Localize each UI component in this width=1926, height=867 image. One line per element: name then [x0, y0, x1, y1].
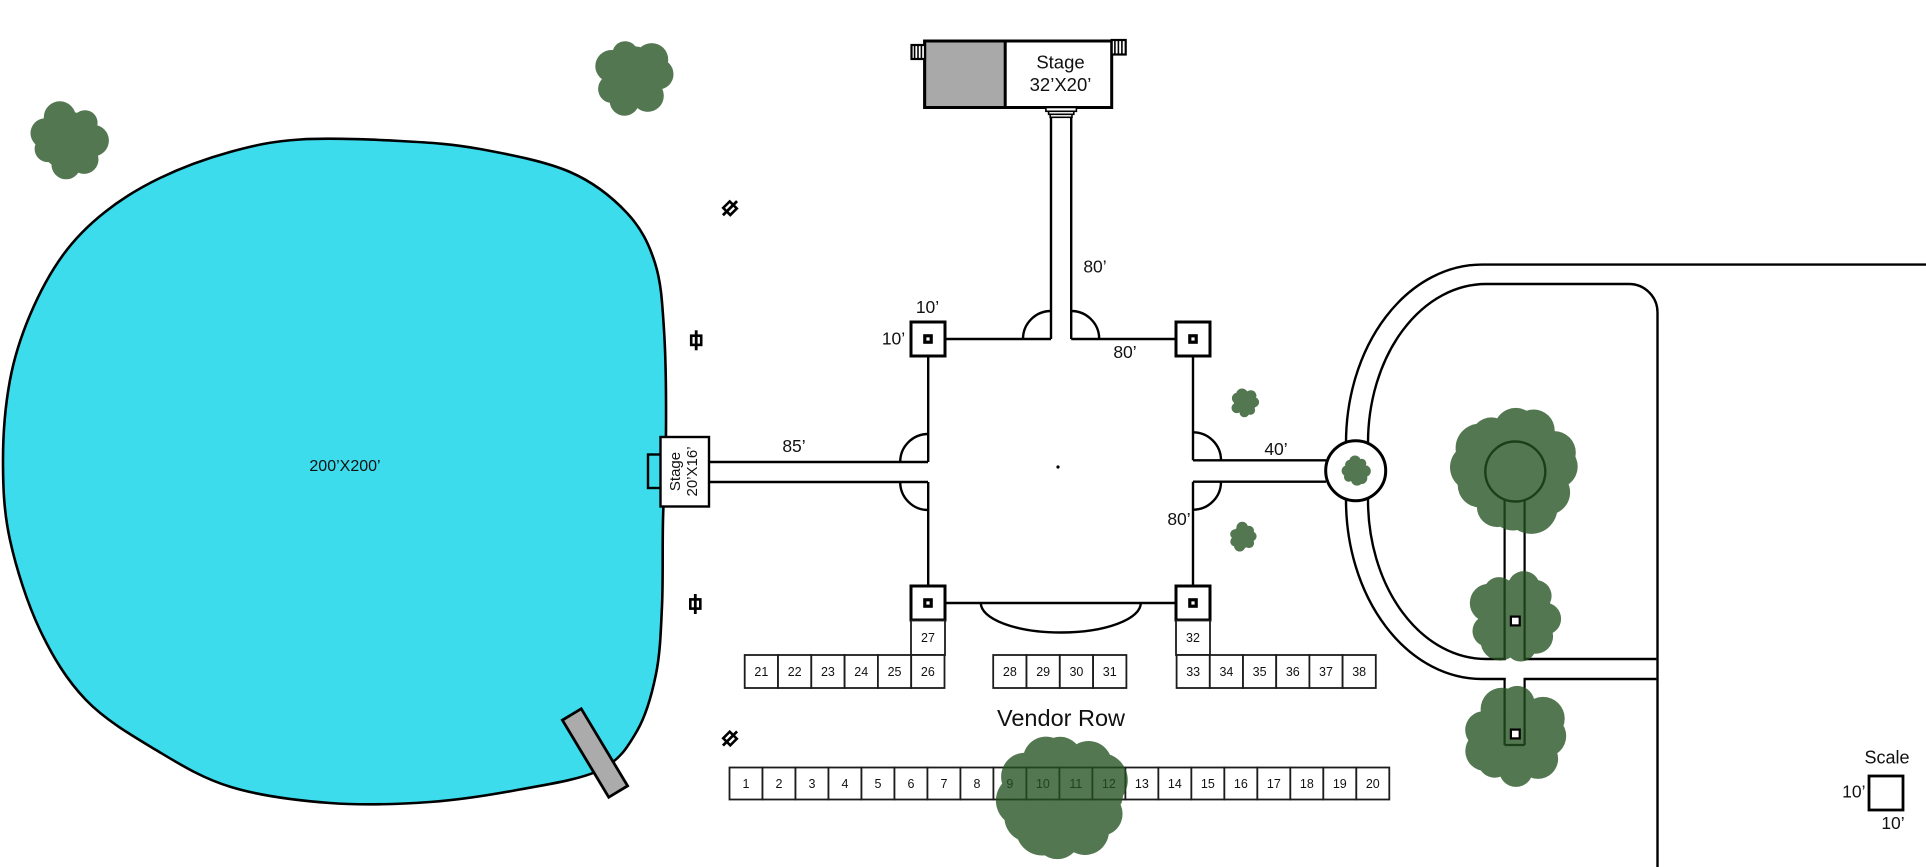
svg-text:31: 31	[1103, 665, 1117, 679]
svg-text:4: 4	[841, 777, 848, 791]
svg-text:20: 20	[1366, 777, 1380, 791]
svg-text:10’: 10’	[882, 329, 905, 349]
svg-text:10’: 10’	[916, 297, 939, 317]
svg-text:22: 22	[788, 665, 802, 679]
svg-text:32’X20’: 32’X20’	[1030, 74, 1092, 95]
svg-text:1: 1	[743, 777, 750, 791]
svg-text:80’: 80’	[1113, 342, 1136, 362]
svg-text:17: 17	[1267, 777, 1281, 791]
svg-text:80’: 80’	[1083, 257, 1106, 277]
svg-text:80’: 80’	[1167, 509, 1190, 529]
svg-text:Stage: Stage	[1036, 52, 1084, 73]
svg-text:6: 6	[907, 777, 914, 791]
svg-text:28: 28	[1003, 665, 1017, 679]
svg-text:27: 27	[921, 631, 935, 645]
svg-text:13: 13	[1135, 777, 1149, 791]
svg-text:26: 26	[921, 665, 935, 679]
svg-text:19: 19	[1333, 777, 1347, 791]
svg-text:15: 15	[1201, 777, 1215, 791]
svg-text:8: 8	[973, 777, 980, 791]
svg-text:18: 18	[1300, 777, 1314, 791]
svg-text:23: 23	[821, 665, 835, 679]
svg-text:21: 21	[754, 665, 768, 679]
svg-text:36: 36	[1286, 665, 1300, 679]
svg-text:7: 7	[940, 777, 947, 791]
svg-text:38: 38	[1352, 665, 1366, 679]
svg-text:30: 30	[1069, 665, 1083, 679]
svg-text:14: 14	[1168, 777, 1182, 791]
svg-text:32: 32	[1186, 631, 1200, 645]
svg-text:200’X200’: 200’X200’	[309, 458, 380, 475]
svg-text:Vendor Row: Vendor Row	[997, 705, 1126, 731]
svg-text:Stage: Stage	[667, 452, 684, 491]
svg-text:16: 16	[1234, 777, 1248, 791]
svg-text:34: 34	[1219, 665, 1233, 679]
svg-text:33: 33	[1186, 665, 1200, 679]
svg-text:40’: 40’	[1264, 439, 1287, 459]
svg-text:3: 3	[809, 777, 816, 791]
svg-text:10’: 10’	[1842, 782, 1865, 802]
svg-text:85’: 85’	[782, 436, 805, 456]
svg-text:2: 2	[776, 777, 783, 791]
svg-text:25: 25	[888, 665, 902, 679]
svg-text:10’: 10’	[1881, 813, 1904, 833]
svg-text:24: 24	[854, 665, 868, 679]
svg-text:35: 35	[1253, 665, 1267, 679]
svg-text:20’X16’: 20’X16’	[684, 446, 701, 496]
svg-text:29: 29	[1036, 665, 1050, 679]
svg-text:37: 37	[1319, 665, 1333, 679]
svg-text:5: 5	[874, 777, 881, 791]
svg-text:Scale: Scale	[1864, 748, 1909, 768]
